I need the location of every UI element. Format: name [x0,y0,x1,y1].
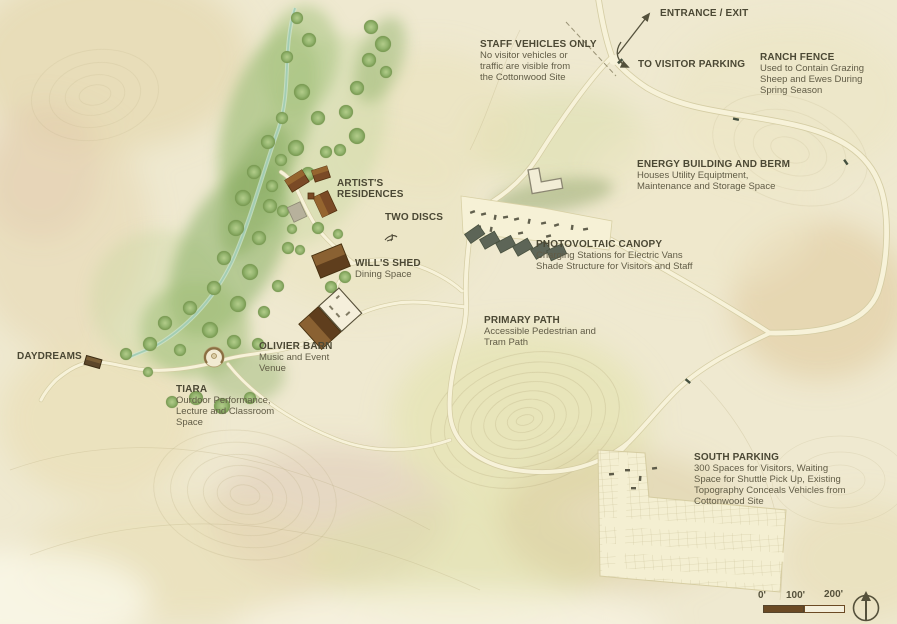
scale-tick-0: 0' [758,590,766,601]
scale-tick-200: 200' [824,589,843,600]
scale-segment-filled [763,605,804,613]
entrance-arrow-icon [618,14,649,54]
tiara-structure [204,347,224,367]
map-artwork [0,0,897,624]
scale-tick-100: 100' [786,590,805,601]
scale-segment-empty [804,605,845,613]
site-map: ENTRANCE / EXIT STAFF VEHICLES ONLY No v… [0,0,897,624]
